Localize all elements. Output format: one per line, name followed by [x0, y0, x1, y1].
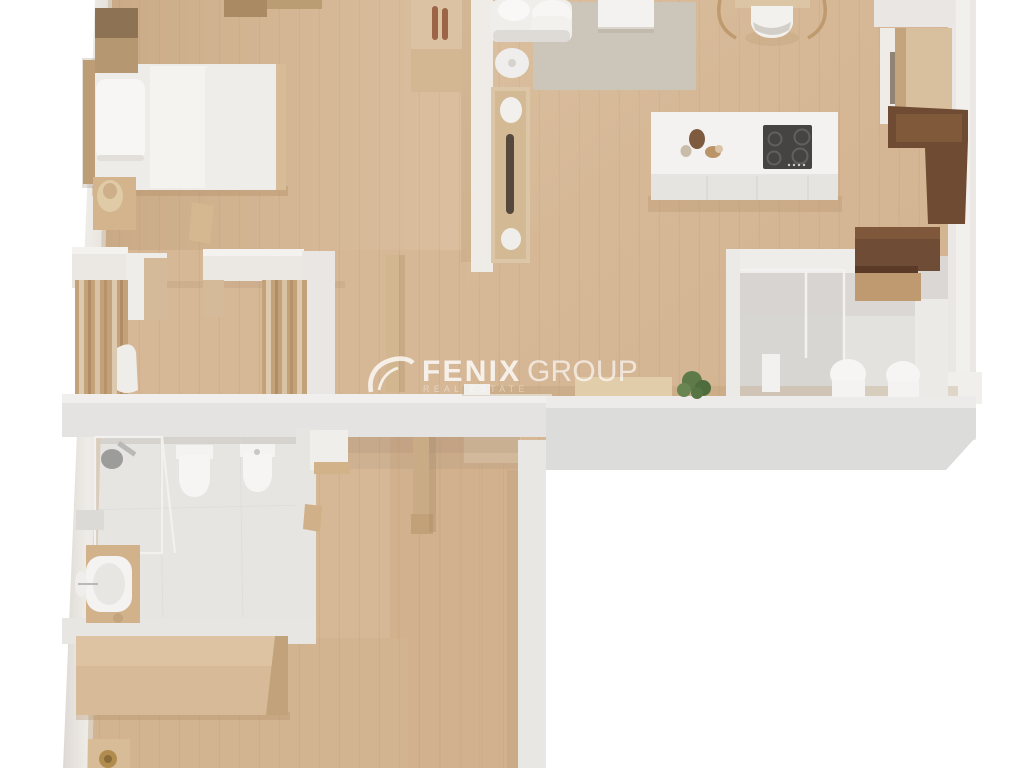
svg-text:GROUP: GROUP	[527, 355, 638, 388]
svg-text:REAL ESTATE: REAL ESTATE	[423, 384, 529, 394]
